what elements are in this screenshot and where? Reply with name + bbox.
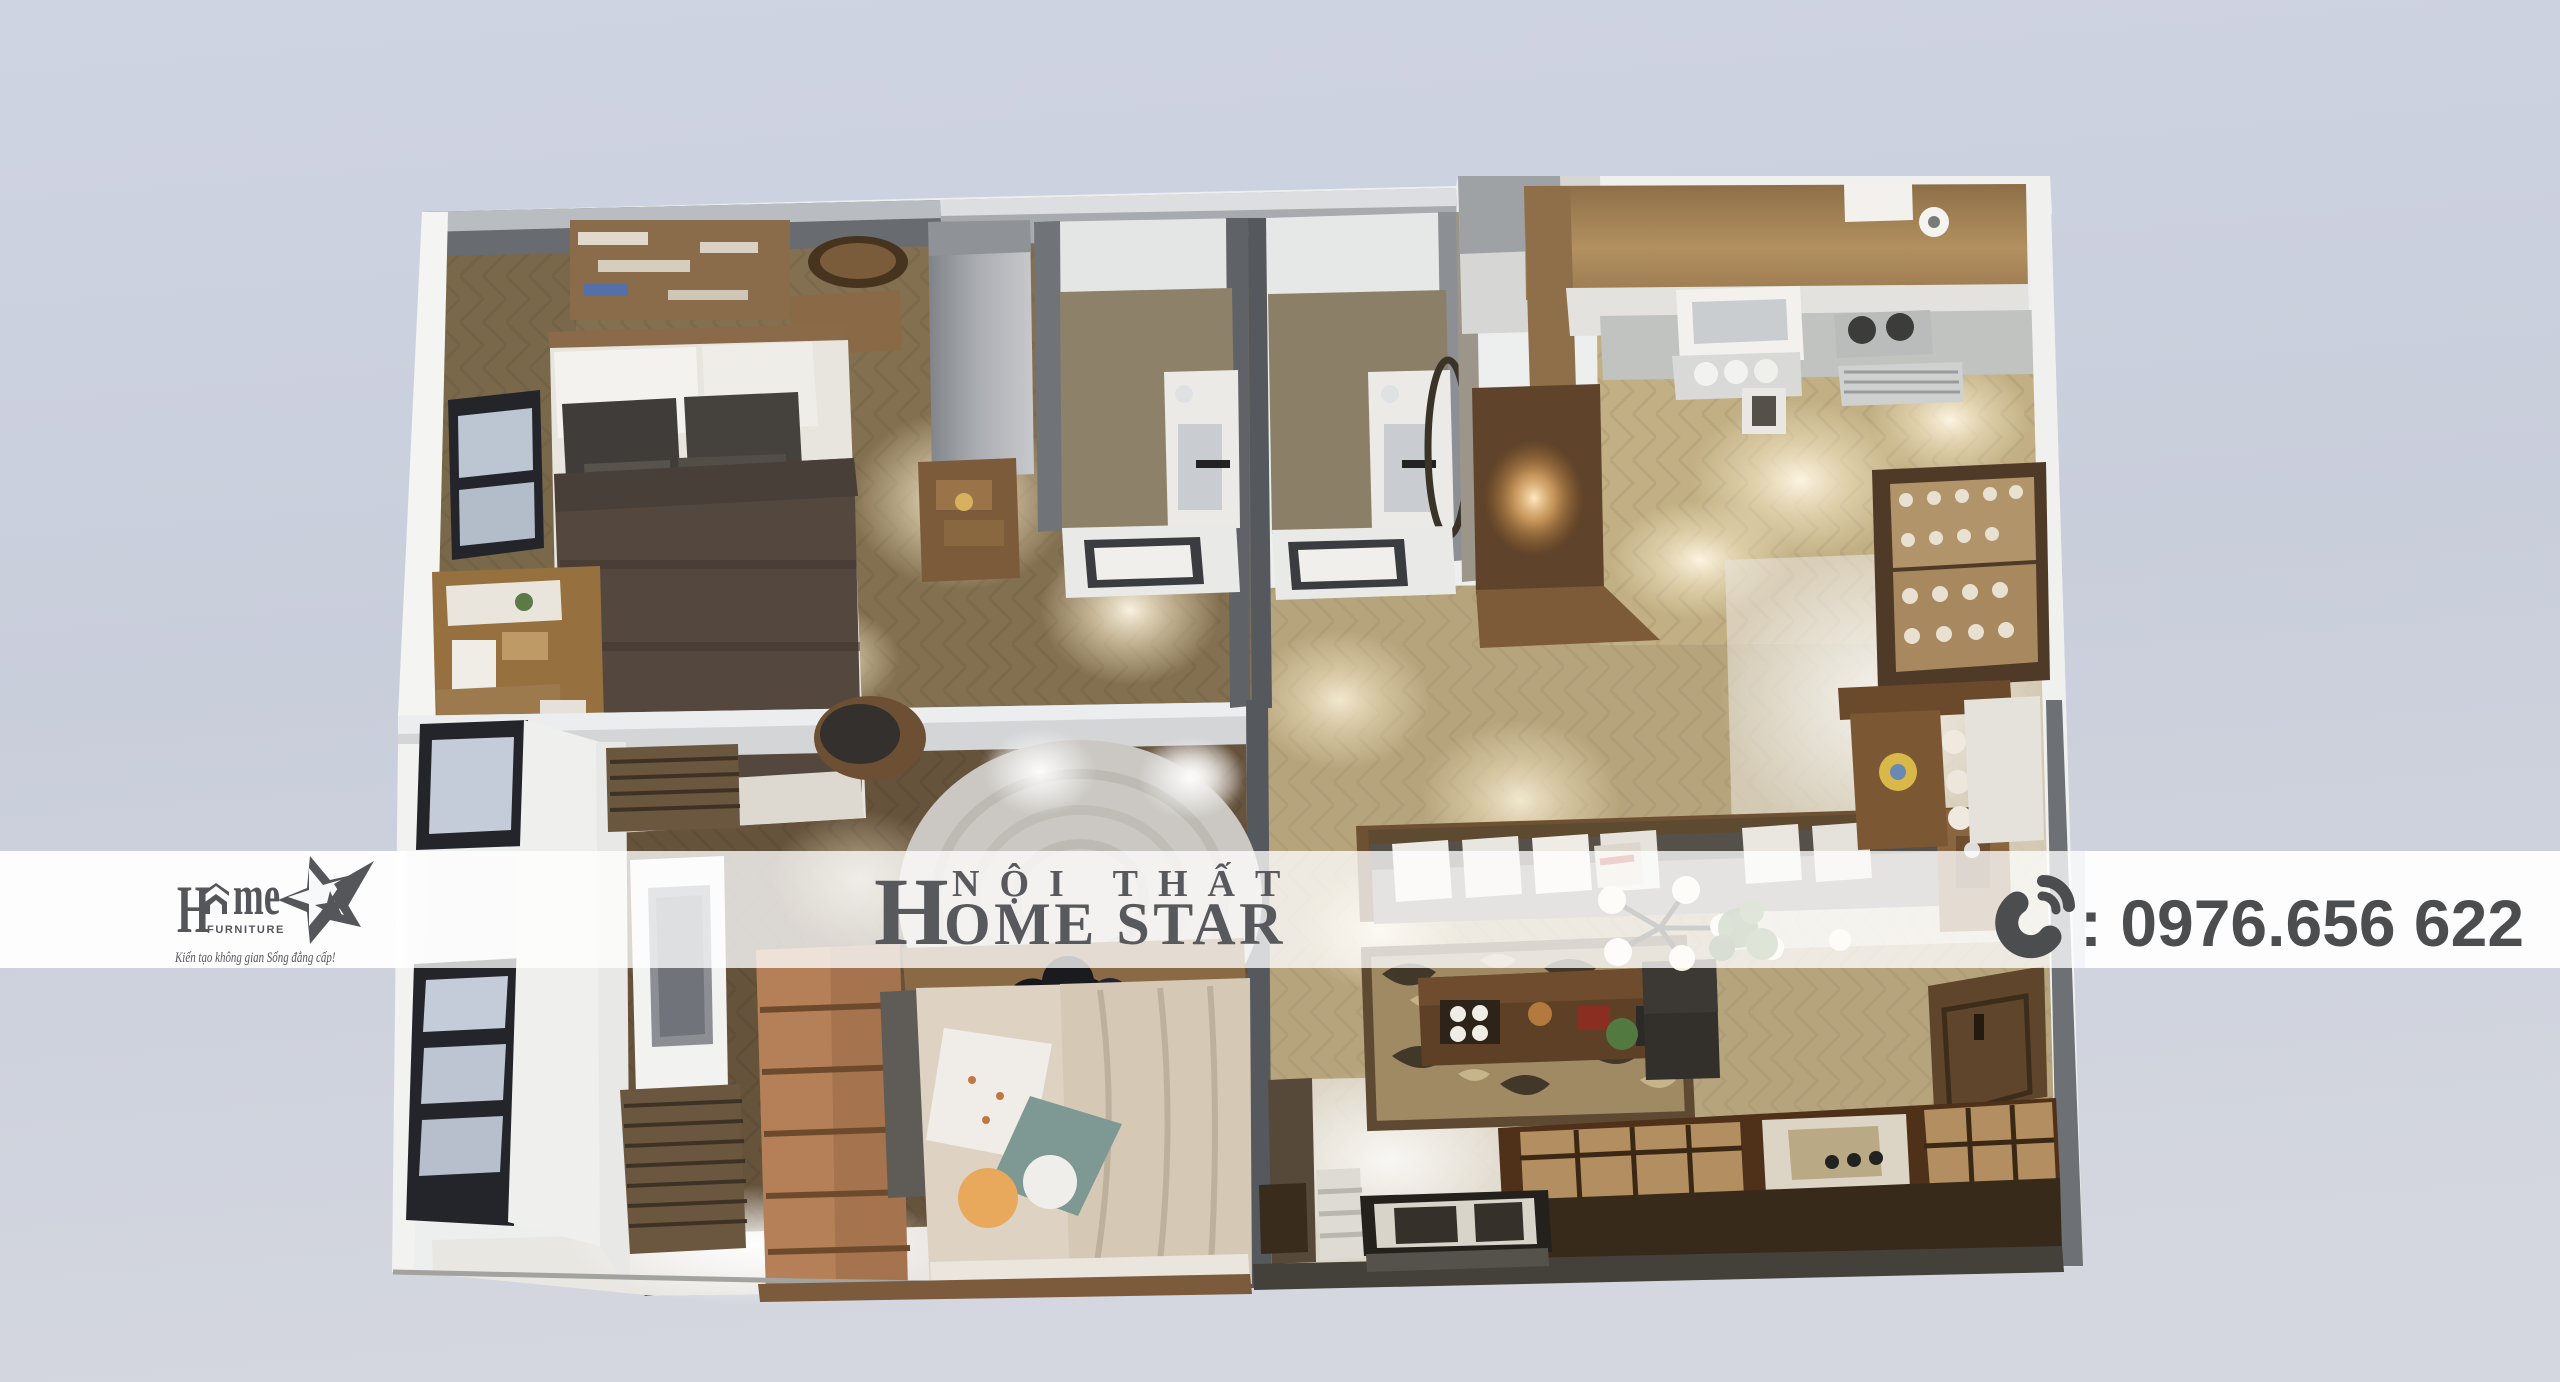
svg-text:H: H	[177, 873, 210, 948]
svg-text:OME STAR: OME STAR	[944, 891, 1286, 957]
svg-text:H: H	[874, 858, 949, 965]
svg-text:: 0976.656 622: : 0976.656 622	[2080, 886, 2524, 960]
svg-text:Kiến tạo không gian Sống đẳng: Kiến tạo không gian Sống đẳng cấp!	[174, 948, 335, 965]
svg-text:me: me	[233, 866, 280, 927]
svg-text:FURNITURE: FURNITURE	[207, 924, 285, 936]
